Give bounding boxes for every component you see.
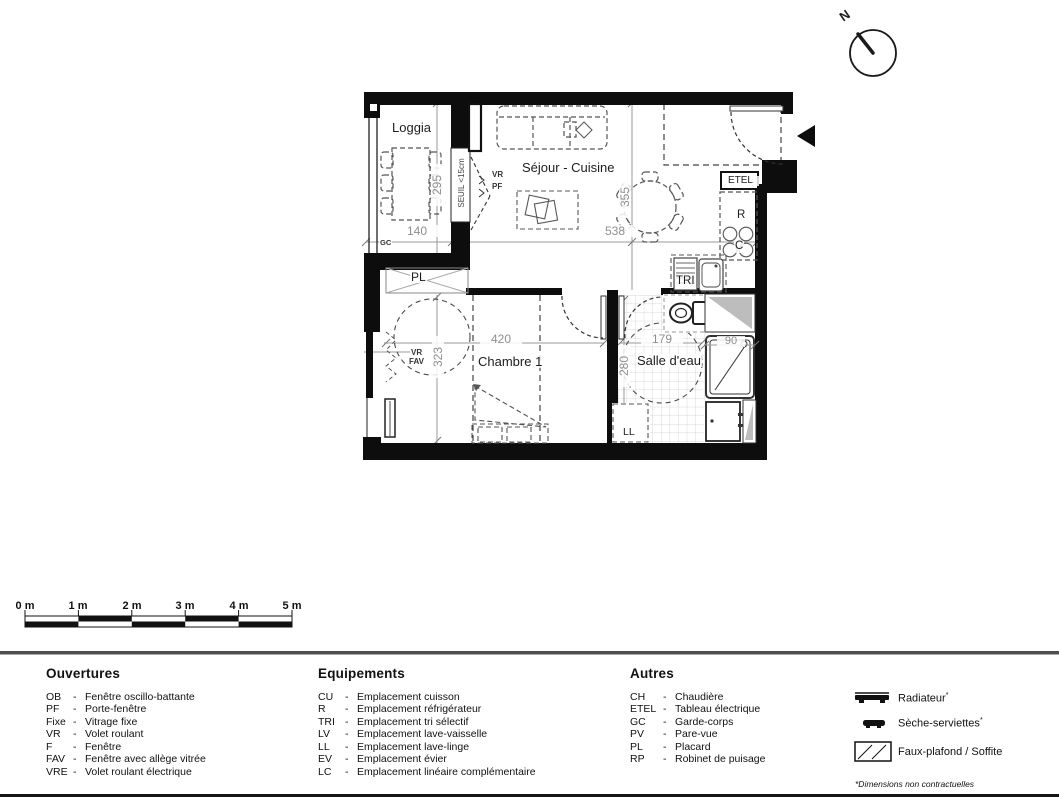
legend-autres-title: Autres xyxy=(630,666,766,681)
bed xyxy=(472,386,548,443)
legend-item-abbr: LC xyxy=(318,766,345,778)
legend-item-dash: - xyxy=(345,766,357,778)
dim-loggia-height: 295 xyxy=(431,164,443,206)
scale-label-3: 3 m xyxy=(167,600,203,612)
legend-item-dash: - xyxy=(345,716,357,728)
legend-bottom-divider xyxy=(0,794,1059,797)
wall-corner-detail xyxy=(370,104,377,111)
legend-item-abbr: R xyxy=(318,703,345,715)
legend-item-abbr: ETEL xyxy=(630,703,663,715)
scale-label-0: 0 m xyxy=(7,600,43,612)
legend-item-dash: - xyxy=(663,691,675,703)
legend-item-abbr: VRE xyxy=(46,766,73,778)
dim-chambre-width: 420 xyxy=(480,333,522,345)
floor-plan-page: Loggia Séjour - Cuisine Chambre 1 Salle … xyxy=(0,0,1059,800)
legend-item-label: Emplacement tri sélectif xyxy=(357,716,468,728)
cooktop-annotation: C xyxy=(734,241,744,253)
legend-item-abbr: CH xyxy=(630,691,663,703)
legend-item-dash: - xyxy=(73,753,85,765)
dim-sejour-height: 355 xyxy=(619,176,631,218)
legend-item: LC-Emplacement linéaire complémentaire xyxy=(318,766,536,778)
legend-item-abbr: TRI xyxy=(318,716,345,728)
fav-annotation: FAV xyxy=(408,358,425,366)
legend-item-label: Emplacement cuisson xyxy=(357,691,460,703)
soffit-legend-label: Faux-plafond / Soffite xyxy=(898,746,1002,758)
vanity-sink xyxy=(704,400,743,443)
dim-sde-height: 280 xyxy=(618,345,630,387)
legend-item-abbr: F xyxy=(46,741,73,753)
legend-item: ETEL-Tableau électrique xyxy=(630,703,766,715)
legend-item-dash: - xyxy=(663,716,675,728)
legend-item: FAV-Fenêtre avec allège vitrée xyxy=(46,753,206,765)
legend-item: LV-Emplacement lave-vaisselle xyxy=(318,728,536,740)
legend-item-label: Vitrage fixe xyxy=(85,716,137,728)
radiator-icon xyxy=(855,693,889,703)
vr-annotation-sejour: VR xyxy=(491,171,504,179)
legend-item: EV-Emplacement évier xyxy=(318,753,536,765)
legend-item-dash: - xyxy=(73,728,85,740)
legend-item-abbr: FAV xyxy=(46,753,73,765)
legend-ouvertures: Ouvertures OB-Fenêtre oscillo-battante P… xyxy=(46,666,206,778)
note-mark: * xyxy=(946,692,949,699)
legend-item-label: Fenêtre oscillo-battante xyxy=(85,691,195,703)
legend-item: CH-Chaudière xyxy=(630,691,766,703)
room-label-loggia: Loggia xyxy=(391,121,432,134)
etel-annotation: ETEL xyxy=(722,176,759,186)
legend-item: LL-Emplacement lave-linge xyxy=(318,741,536,753)
legend-item: TRI-Emplacement tri sélectif xyxy=(318,716,536,728)
legend-item-dash: - xyxy=(73,691,85,703)
legend-item: R-Emplacement réfrigérateur xyxy=(318,703,536,715)
legend-item-abbr: PF xyxy=(46,703,73,715)
legend-item: VRE-Volet roulant électrique xyxy=(46,766,206,778)
sofa xyxy=(497,106,607,149)
placard xyxy=(386,268,468,293)
legend-item-abbr: EV xyxy=(318,753,345,765)
scale-label-1: 1 m xyxy=(60,600,96,612)
legend-item-label: Robinet de puisage xyxy=(675,753,766,765)
loggia-guardrail xyxy=(369,118,377,253)
scale-label-4: 4 m xyxy=(221,600,257,612)
legend-item-dash: - xyxy=(345,753,357,765)
entry-door xyxy=(730,106,783,164)
pf-annotation: PF xyxy=(491,183,503,191)
coffee-table xyxy=(517,191,578,229)
legend-item-label: Volet roulant xyxy=(85,728,143,740)
legend-item-dash: - xyxy=(345,728,357,740)
legend-item-abbr: VR xyxy=(46,728,73,740)
dim-chambre-height: 323 xyxy=(432,336,444,378)
legend-item-label: Emplacement lave-vaisselle xyxy=(357,728,487,740)
room-label-chambre: Chambre 1 xyxy=(477,355,543,368)
legend-autres: Autres CH-Chaudière ETEL-Tableau électri… xyxy=(630,666,766,766)
legend-item-label: Emplacement linéaire complémentaire xyxy=(357,766,536,778)
legend-item-dash: - xyxy=(345,703,357,715)
compass-icon xyxy=(850,30,896,76)
legend-item: VR-Volet roulant xyxy=(46,728,206,740)
legend-item-label: Garde-corps xyxy=(675,716,733,728)
legend-item-dash: - xyxy=(73,766,85,778)
legend-item-dash: - xyxy=(345,741,357,753)
tri-annotation: TRI xyxy=(675,276,696,288)
legend-item-abbr: LV xyxy=(318,728,345,740)
legend-item-label: Emplacement lave-linge xyxy=(357,741,469,753)
legend-item-label: Fenêtre avec allège vitrée xyxy=(85,753,206,765)
legend-item-dash: - xyxy=(663,741,675,753)
dim-sde-width: 179 xyxy=(641,333,683,345)
legend-item: PV-Pare-vue xyxy=(630,728,766,740)
scale-label-2: 2 m xyxy=(114,600,150,612)
legend-item-abbr: CU xyxy=(318,691,345,703)
sofa-cushion xyxy=(576,122,592,138)
legend-item-abbr: LL xyxy=(318,741,345,753)
legend-item: PF-Porte-fenêtre xyxy=(46,703,206,715)
legend-item-dash: - xyxy=(663,703,675,715)
towel-dryer-icon xyxy=(863,720,885,728)
legend-item-label: Pare-vue xyxy=(675,728,718,740)
dim-loggia-width: 140 xyxy=(396,225,438,237)
room-label-sejour: Séjour - Cuisine xyxy=(521,161,616,174)
legend-item-dash: - xyxy=(663,728,675,740)
dim-sejour-width: 538 xyxy=(594,225,636,237)
legend-item-dash: - xyxy=(73,741,85,753)
legend-item: GC-Garde-corps xyxy=(630,716,766,728)
legend-item-label: Emplacement évier xyxy=(357,753,447,765)
legend-item-dash: - xyxy=(73,716,85,728)
towel-dryer-legend-label: Sèche-serviettes* xyxy=(898,717,983,730)
dim-shower: 90 xyxy=(717,336,745,347)
legend-item-dash: - xyxy=(73,703,85,715)
legend-item: Fixe-Vitrage fixe xyxy=(46,716,206,728)
legend-item: CU-Emplacement cuisson xyxy=(318,691,536,703)
legend-item-abbr: Fixe xyxy=(46,716,73,728)
legend-item: RP-Robinet de puisage xyxy=(630,753,766,765)
seuil-annotation: SEUIL <15cm xyxy=(458,150,466,216)
radiator-legend-label: Radiateur* xyxy=(898,692,948,705)
refrigerator-annotation: R xyxy=(736,210,746,222)
legend-item-abbr: PL xyxy=(630,741,663,753)
legend-item-abbr: RP xyxy=(630,753,663,765)
legend-item: OB-Fenêtre oscillo-battante xyxy=(46,691,206,703)
washer-annotation: LL xyxy=(622,427,636,438)
entrance-arrow-icon xyxy=(797,125,815,147)
vr-annotation-chambre: VR xyxy=(410,349,423,357)
pl-annotation: PL xyxy=(410,271,427,283)
note-mark: * xyxy=(980,717,983,724)
bed-arrow xyxy=(473,384,481,391)
soffit-triangle-bottom xyxy=(743,400,756,443)
legend-footnote: *Dimensions non contractuelles xyxy=(855,779,974,789)
legend-item-abbr: GC xyxy=(630,716,663,728)
legend-item-label: Chaudière xyxy=(675,691,723,703)
legend-item: F-Fenêtre xyxy=(46,741,206,753)
porte-fenetre-swing xyxy=(471,157,490,230)
gc-annotation: GC xyxy=(379,239,392,247)
scale-label-5: 5 m xyxy=(274,600,310,612)
legend-item: PL-Placard xyxy=(630,741,766,753)
legend-item-dash: - xyxy=(345,691,357,703)
soffit-triangle-top xyxy=(705,294,755,332)
soffit-icon xyxy=(855,742,891,761)
legend-top-divider xyxy=(0,651,1059,655)
legend-item-abbr: OB xyxy=(46,691,73,703)
legend-ouvertures-title: Ouvertures xyxy=(46,666,206,681)
room-label-salle-deau: Salle d'eau xyxy=(636,354,702,367)
chambre-door xyxy=(562,296,606,339)
legend-item-label: Porte-fenêtre xyxy=(85,703,146,715)
scale-bar xyxy=(25,610,292,627)
legend-item-label: Placard xyxy=(675,741,711,753)
legend-item-dash: - xyxy=(663,753,675,765)
legend-item-label: Tableau électrique xyxy=(675,703,760,715)
legend-item-label: Fenêtre xyxy=(85,741,121,753)
legend-item-label: Volet roulant électrique xyxy=(85,766,192,778)
legend-item-abbr: PV xyxy=(630,728,663,740)
legend-item-label: Emplacement réfrigérateur xyxy=(357,703,481,715)
legend-equipements: Equipements CU-Emplacement cuisson R-Emp… xyxy=(318,666,536,778)
legend-equipements-title: Equipements xyxy=(318,666,536,681)
